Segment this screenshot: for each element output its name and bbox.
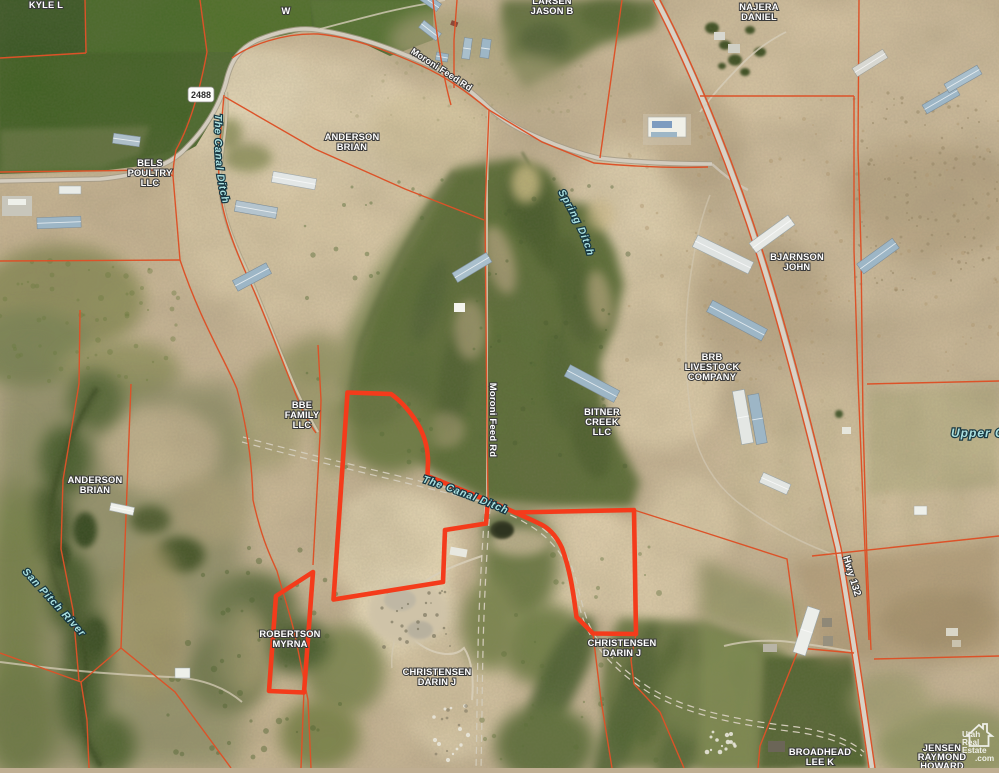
svg-text:.com: .com: [975, 754, 994, 763]
svg-text:CREEK: CREEK: [585, 417, 619, 427]
svg-text:Upper Ca: Upper Ca: [951, 426, 999, 440]
svg-text:ANDERSON: ANDERSON: [68, 475, 123, 485]
svg-text:BRIAN: BRIAN: [80, 485, 111, 495]
svg-text:KYLE L: KYLE L: [29, 0, 63, 10]
svg-text:LEE K: LEE K: [806, 757, 834, 767]
svg-text:DARIN J: DARIN J: [418, 677, 457, 687]
svg-text:Moroni Feed Rd: Moroni Feed Rd: [487, 383, 498, 458]
svg-text:ROBERTSON: ROBERTSON: [259, 629, 320, 639]
svg-text:BBE: BBE: [292, 400, 312, 410]
svg-text:LLC: LLC: [593, 427, 612, 437]
svg-text:LIVESTOCK: LIVESTOCK: [685, 362, 740, 372]
svg-text:BJARNSON: BJARNSON: [770, 252, 824, 262]
svg-text:HOWARD: HOWARD: [920, 761, 964, 768]
svg-text:JASON B: JASON B: [531, 6, 574, 16]
svg-text:BITNER: BITNER: [584, 407, 620, 417]
svg-text:FAMILY: FAMILY: [285, 410, 320, 420]
svg-text:JOHN: JOHN: [784, 262, 811, 272]
svg-text:DARIN J: DARIN J: [603, 648, 642, 658]
svg-text:POULTRY: POULTRY: [128, 168, 173, 178]
svg-text:LLC: LLC: [141, 178, 160, 188]
svg-text:2488: 2488: [191, 90, 211, 100]
svg-text:BRIAN: BRIAN: [337, 142, 368, 152]
svg-text:DANIEL: DANIEL: [741, 12, 777, 22]
svg-text:MYRNA: MYRNA: [272, 639, 307, 649]
svg-text:CHRISTENSEN: CHRISTENSEN: [588, 638, 657, 648]
svg-text:W: W: [282, 6, 291, 16]
svg-text:LLC: LLC: [293, 420, 312, 430]
svg-text:CHRISTENSEN: CHRISTENSEN: [403, 667, 472, 677]
svg-text:BROADHEAD: BROADHEAD: [789, 747, 851, 757]
svg-text:COMPANY: COMPANY: [688, 372, 737, 382]
svg-text:NAJERA: NAJERA: [739, 2, 779, 12]
svg-text:ANDERSON: ANDERSON: [325, 132, 380, 142]
svg-text:BELS: BELS: [137, 158, 163, 168]
svg-text:BRB: BRB: [702, 352, 723, 362]
